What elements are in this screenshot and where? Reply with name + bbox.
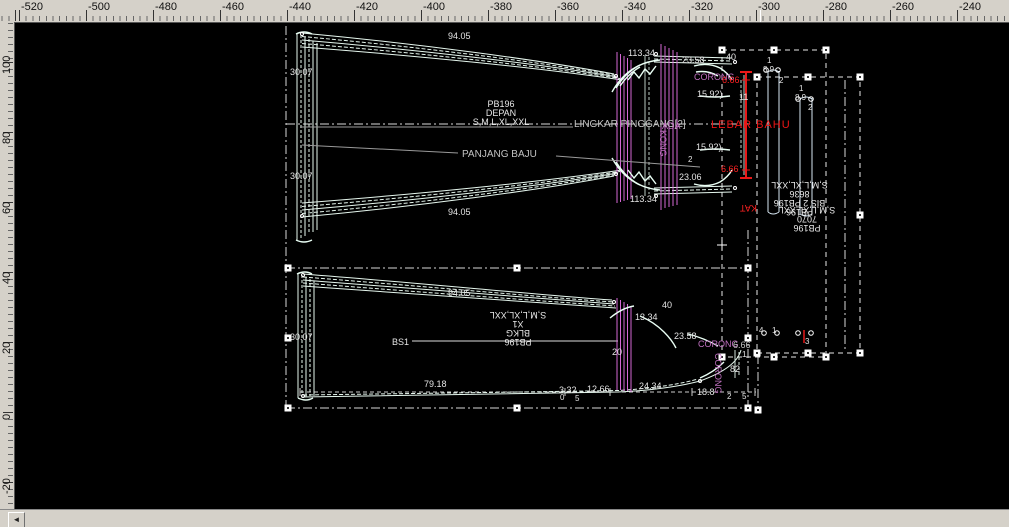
ruler-label: -420 bbox=[356, 1, 378, 13]
dim-label: 94.05 bbox=[448, 288, 471, 298]
dim-label: 8.9 bbox=[763, 65, 774, 74]
back-piece-label: PB196 BLKG X1 S,M,L,XL,XXL bbox=[468, 310, 568, 346]
dim-label: 113.34 bbox=[630, 194, 657, 204]
piece-sizes: S,M,L,XL,XXL bbox=[762, 205, 852, 214]
dim-label: 18.8 bbox=[697, 387, 715, 397]
grade-number: 1 bbox=[799, 84, 803, 93]
grade-number: 4 bbox=[759, 326, 763, 335]
grade-number: 2 bbox=[779, 76, 783, 85]
dim-label: 94.05 bbox=[448, 31, 471, 41]
ruler-label: -340 bbox=[624, 1, 646, 13]
ruler-label: 60 bbox=[1, 202, 13, 214]
piece-sizes: S,M,L,XL,XXL bbox=[455, 118, 547, 127]
grade-number: 1 bbox=[742, 350, 746, 359]
dim-label: 8.9 bbox=[795, 93, 806, 102]
dim-label: 30.07 bbox=[290, 332, 313, 342]
grade-number: 5 bbox=[742, 392, 746, 401]
dim-label-red: 6.66 bbox=[721, 164, 739, 174]
ruler-label: -280 bbox=[825, 1, 847, 13]
piece-sizes: S,M,L,XL,XXL bbox=[468, 310, 568, 319]
dim-label: 23.06 bbox=[679, 172, 702, 182]
grade-number: 3 bbox=[805, 337, 809, 346]
ruler-label: 40 bbox=[1, 272, 13, 284]
vertical-ruler: 100 80 60 40 20 0 -20 bbox=[0, 22, 15, 509]
piece-code: PB196 bbox=[468, 337, 568, 346]
notch-number: 0 bbox=[560, 393, 564, 402]
grade-number: 1 bbox=[767, 56, 771, 65]
grade-line-bundles bbox=[617, 44, 677, 392]
dim-label: 24.34 bbox=[639, 381, 662, 391]
ruler-label: -460 bbox=[222, 1, 244, 13]
scroll-left-button[interactable]: ◄ bbox=[8, 512, 25, 527]
pattern-cad-window: 94.05 30.07 30.07 94.05 PANJANG BAJU LIN… bbox=[0, 0, 1009, 527]
piece-sizes: S,M,L,XL,XXL bbox=[752, 180, 847, 189]
ruler-label: -360 bbox=[557, 1, 579, 13]
ruler-label: -440 bbox=[289, 1, 311, 13]
ruler-label: -400 bbox=[423, 1, 445, 13]
dim-label: 11 bbox=[739, 92, 748, 102]
pattern-canvas[interactable]: 94.05 30.07 30.07 94.05 PANJANG BAJU LIN… bbox=[0, 0, 1009, 527]
dim-label: 30.07 bbox=[290, 171, 313, 181]
dim-label: 94.05 bbox=[448, 207, 471, 217]
ruler-label: -320 bbox=[691, 1, 713, 13]
ruler-label: -300 bbox=[758, 1, 780, 13]
dim-label: 15.92) bbox=[697, 89, 723, 99]
lebar-bahu-label: LEBAR BAHU bbox=[711, 119, 791, 131]
horizontal-scrollbar[interactable]: ◄ bbox=[0, 509, 1009, 527]
ruler-label: 20 bbox=[1, 342, 13, 354]
grade-number: 1 bbox=[772, 326, 776, 335]
ruler-label: -260 bbox=[892, 1, 914, 13]
ruler-label: -480 bbox=[155, 1, 177, 13]
panjang-baju-label: PANJANG BAJU bbox=[462, 149, 537, 160]
ruler-label: -380 bbox=[490, 1, 512, 13]
ruler-label: 100 bbox=[1, 56, 13, 74]
strip-red-label: KAT bbox=[740, 203, 757, 213]
dim-label: 40 bbox=[726, 52, 736, 62]
corong-label-vertical: CORONG bbox=[713, 353, 723, 394]
strip-b-label: PB196 7070 S,M,L,XL,XXL bbox=[762, 205, 852, 232]
piece-text-fragment-vertical: KONG bbox=[658, 130, 668, 157]
dim-label: 30.07 bbox=[290, 67, 313, 77]
dim-label: 20 bbox=[612, 347, 622, 357]
grade-number: 2 bbox=[808, 103, 812, 112]
pattern-drawing bbox=[0, 0, 1009, 527]
dim-label-red: 6.66 bbox=[722, 75, 740, 85]
origin-cross-marker bbox=[717, 240, 727, 250]
dim-label: 6.66 bbox=[733, 340, 751, 350]
piece-number: 7070 bbox=[762, 214, 852, 223]
piece-name: BLKG bbox=[468, 328, 568, 337]
dim-label: 113.34 bbox=[628, 48, 655, 58]
front-piece-label: PB196 DEPAN S,M,L,XL,XXL bbox=[455, 100, 547, 127]
dim-label: 23.58 bbox=[682, 55, 705, 65]
dim-label: 23.58 bbox=[674, 331, 697, 341]
ruler-label: -520 bbox=[21, 1, 43, 13]
grade-number: 2 bbox=[688, 155, 692, 164]
ruler-cursor-marker bbox=[760, 10, 761, 22]
ruler-major-ticks bbox=[3, 22, 13, 509]
ruler-label: -240 bbox=[959, 1, 981, 13]
ruler-label: 0 bbox=[1, 414, 13, 420]
dim-label: 15.92) bbox=[696, 142, 722, 152]
dim-label: 40 bbox=[662, 300, 672, 310]
grade-number: 2 bbox=[727, 392, 731, 401]
dim-label: 12.66 bbox=[587, 384, 610, 394]
notch-number: 5 bbox=[575, 394, 579, 403]
piece-code: PB196 bbox=[762, 223, 852, 232]
dim-label: 13.34 bbox=[635, 312, 658, 322]
scroll-left-icon: ◄ bbox=[13, 515, 21, 524]
ruler-label: 80 bbox=[1, 132, 13, 144]
piece-number: 8636 bbox=[752, 189, 847, 198]
bs1-label: BS1 bbox=[392, 337, 409, 347]
horizontal-ruler: -520 -500 -480 -460 -440 -420 -400 -380 … bbox=[0, 0, 1009, 23]
ruler-label: -20 bbox=[1, 478, 13, 494]
dim-label: 79.18 bbox=[424, 379, 447, 389]
ruler-label: -500 bbox=[88, 1, 110, 13]
piece-variant: X1 bbox=[468, 319, 568, 328]
leader-lines bbox=[300, 127, 700, 167]
dim-label: 82 bbox=[730, 364, 740, 374]
